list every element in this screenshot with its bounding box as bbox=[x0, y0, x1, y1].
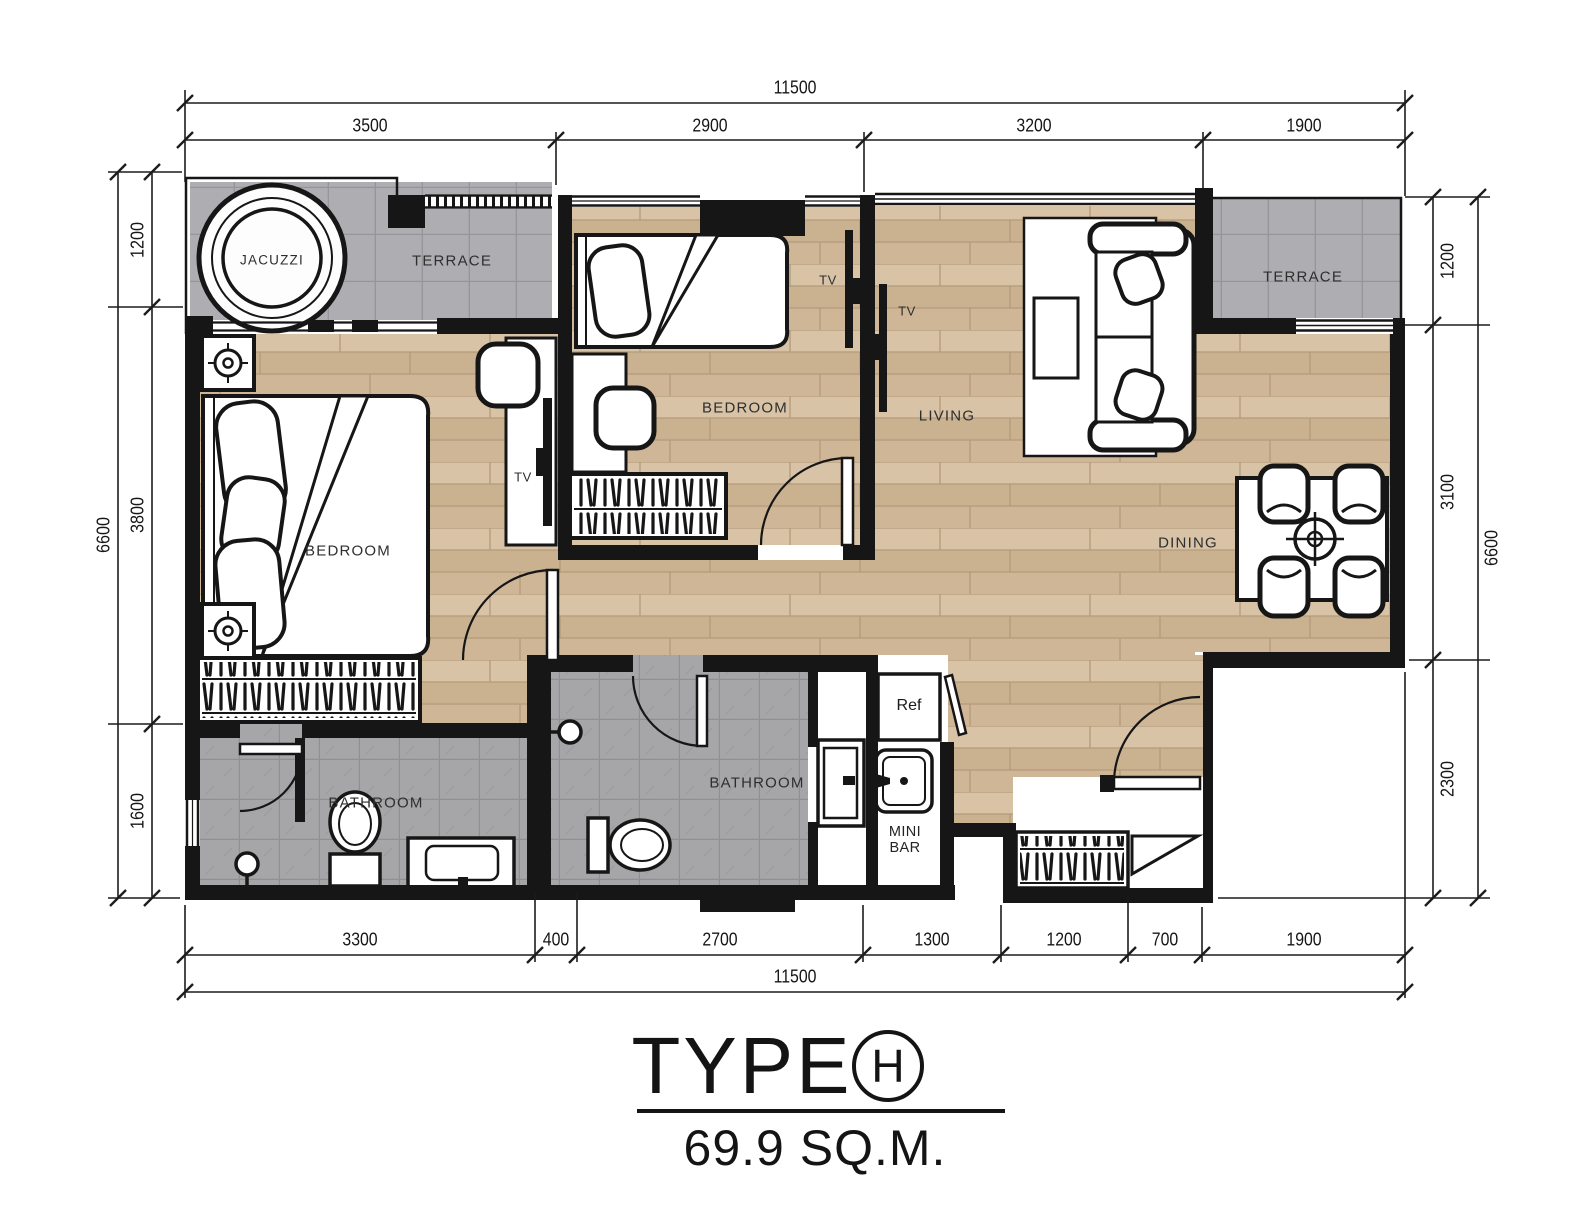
wall bbox=[1203, 668, 1213, 903]
entry-corner-shelf bbox=[1132, 836, 1198, 874]
dim-bottom-total: 11500 bbox=[774, 967, 817, 988]
dim-top-seg-4: 1900 bbox=[1286, 116, 1321, 137]
dim-top-seg-3: 3200 bbox=[1016, 116, 1051, 137]
window-bedroom2-right bbox=[805, 195, 860, 207]
plan-type-title: TYPE bbox=[632, 1020, 853, 1112]
window-bedroom2-left bbox=[572, 195, 700, 207]
nightstand-lamp-top bbox=[202, 336, 254, 390]
dim-left-seg-2: 3800 bbox=[128, 497, 149, 533]
label-refrigerator: Ref bbox=[897, 697, 922, 715]
plan-type-letter-badge: H bbox=[852, 1030, 924, 1102]
wall bbox=[185, 723, 240, 738]
dim-left-seg-3: 1600 bbox=[128, 793, 149, 829]
label-tv-bedroom: TV bbox=[819, 273, 837, 288]
dim-left-total: 6600 bbox=[94, 517, 115, 553]
dim-top-total: 11500 bbox=[774, 78, 817, 99]
floor-entry-hall bbox=[948, 655, 1203, 777]
wall bbox=[843, 545, 875, 560]
label-bathroom-master: BATHROOM bbox=[328, 795, 423, 812]
dim-bottom-seg-1: 3300 bbox=[342, 930, 377, 951]
dim-right-seg-1: 1200 bbox=[1438, 243, 1459, 279]
wall bbox=[527, 655, 551, 895]
dim-right-seg-3: 2300 bbox=[1438, 761, 1459, 797]
label-tv-master: TV bbox=[514, 470, 532, 485]
dim-bottom-seg-2: 400 bbox=[543, 930, 569, 951]
wall bbox=[866, 672, 878, 885]
wall bbox=[703, 655, 878, 672]
toilet-shared bbox=[588, 818, 670, 872]
label-terrace-left: TERRACE bbox=[412, 253, 492, 270]
dining-set bbox=[1237, 466, 1387, 616]
label-dining: DINING bbox=[1158, 535, 1218, 552]
dim-right-total: 6600 bbox=[1482, 530, 1503, 566]
coffee-table bbox=[1034, 298, 1078, 378]
wall bbox=[1100, 775, 1114, 792]
nightstand-lamp-bottom bbox=[202, 604, 254, 658]
floor-entry-hall2 bbox=[948, 777, 1013, 823]
floor-bath1-doorgap bbox=[240, 723, 302, 739]
plan-area: 69.9 SQ.M. bbox=[684, 1119, 947, 1177]
wall bbox=[1390, 330, 1405, 656]
floor-bath2-doorgap bbox=[633, 655, 703, 673]
wall bbox=[700, 898, 795, 912]
plan-type-letter: H bbox=[871, 1039, 904, 1093]
sliding-door-terrace-right bbox=[1296, 318, 1393, 334]
wall bbox=[808, 672, 818, 747]
master-desk-chair bbox=[478, 344, 538, 406]
floor-terrace-right bbox=[1213, 198, 1401, 318]
tv-panel-living bbox=[879, 284, 887, 412]
wall bbox=[1195, 318, 1296, 334]
sofa-set bbox=[1024, 218, 1194, 456]
wall bbox=[808, 822, 818, 895]
dim-left-seg-1: 1200 bbox=[128, 222, 149, 258]
dim-bottom-seg-7: 1900 bbox=[1286, 930, 1321, 951]
label-bathroom-shared: BATHROOM bbox=[709, 775, 804, 792]
wall bbox=[860, 195, 875, 560]
dim-bottom-seg-3: 2700 bbox=[702, 930, 737, 951]
wall bbox=[945, 823, 1013, 837]
dim-right-seg-2: 3100 bbox=[1438, 474, 1459, 510]
floorplan-page: 11500 3500 2900 3200 1900 3300 400 2700 … bbox=[0, 0, 1581, 1226]
wall bbox=[558, 195, 572, 560]
minibar-sink bbox=[876, 750, 932, 812]
vanity-shared bbox=[818, 740, 864, 826]
tv-panel-bedroom2 bbox=[845, 230, 853, 348]
label-living: LIVING bbox=[919, 408, 975, 425]
dim-bottom-seg-4: 1300 bbox=[914, 930, 949, 951]
desk-chair-second bbox=[596, 388, 654, 448]
label-minibar: MINI BAR bbox=[889, 824, 921, 856]
dim-top-seg-1: 3500 bbox=[352, 116, 387, 137]
label-jacuzzi: JACUZZI bbox=[240, 253, 304, 268]
label-bedroom-second: BEDROOM bbox=[702, 400, 788, 417]
terrace-railing bbox=[425, 194, 552, 209]
wall bbox=[1203, 652, 1405, 668]
wall bbox=[185, 316, 213, 334]
wall bbox=[185, 885, 955, 900]
window-bathroom-master bbox=[185, 800, 200, 846]
wall bbox=[437, 318, 563, 334]
floor-door-gap bbox=[558, 560, 572, 660]
wall bbox=[388, 195, 425, 228]
dim-bottom-seg-6: 700 bbox=[1152, 930, 1178, 951]
wall bbox=[1195, 188, 1213, 330]
label-terrace-right: TERRACE bbox=[1263, 269, 1343, 286]
sliding-door-living bbox=[875, 192, 1195, 206]
wall bbox=[1003, 888, 1213, 903]
wardrobe-second bbox=[570, 474, 726, 538]
wall bbox=[700, 200, 805, 236]
dim-bottom-seg-5: 1200 bbox=[1046, 930, 1081, 951]
wall bbox=[572, 545, 758, 560]
dim-top-seg-2: 2900 bbox=[692, 116, 727, 137]
bed-second bbox=[576, 235, 787, 347]
wall bbox=[940, 742, 954, 885]
label-bedroom-master: BEDROOM bbox=[305, 543, 391, 560]
vanity-master bbox=[408, 838, 514, 888]
wall bbox=[302, 723, 531, 738]
shoe-cabinet bbox=[1016, 832, 1128, 888]
title-underline bbox=[637, 1109, 1005, 1113]
floor-hall bbox=[572, 560, 860, 655]
label-tv-living: TV bbox=[898, 304, 916, 319]
wardrobe-master bbox=[198, 658, 420, 722]
